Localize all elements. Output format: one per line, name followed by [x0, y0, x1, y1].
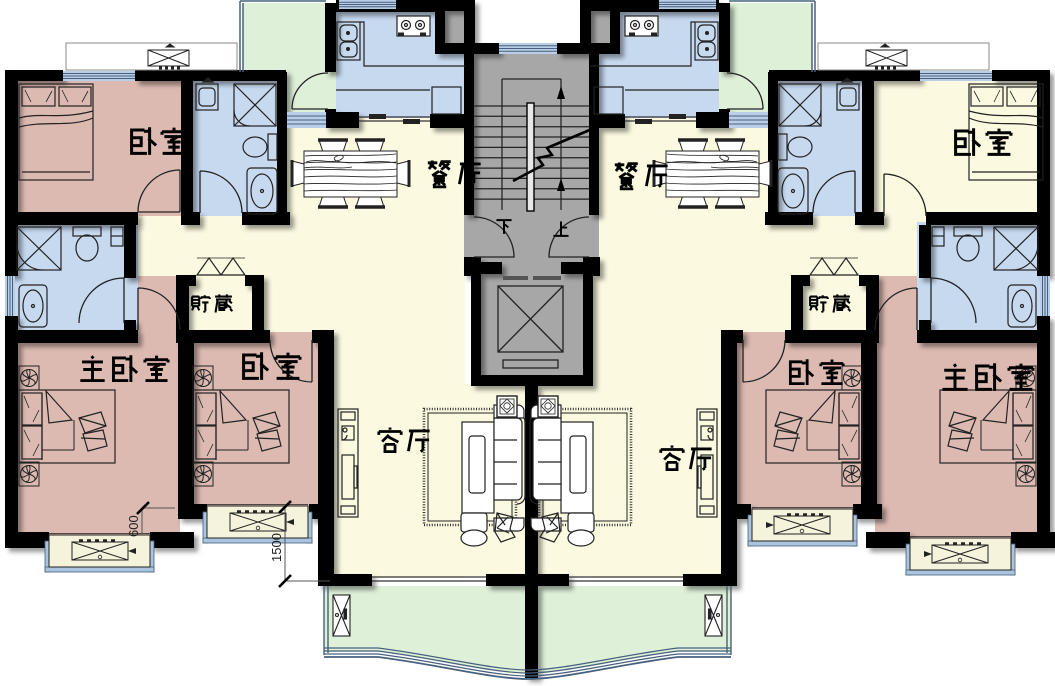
svg-text:1500: 1500 [269, 533, 284, 562]
svg-text:600: 600 [126, 515, 141, 537]
